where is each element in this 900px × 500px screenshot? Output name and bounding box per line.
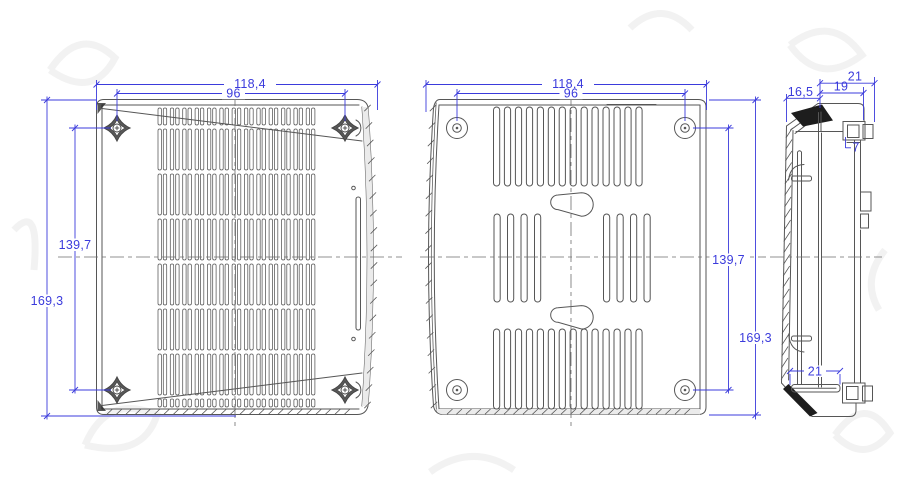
vent-slot: [526, 107, 532, 186]
vent-slot: [306, 108, 309, 125]
vent-slot: [225, 219, 228, 260]
vent-slot: [220, 309, 223, 350]
vent-slot: [170, 129, 173, 170]
vent-slot: [262, 219, 265, 260]
vent-slot: [262, 264, 265, 305]
vent-slot: [294, 399, 297, 407]
background-watermark-part: [430, 456, 514, 472]
background-watermark: [14, 13, 890, 472]
background-watermark-part: [50, 44, 115, 82]
vent-slot: [306, 399, 309, 407]
back-vents-mid-left: [494, 214, 541, 302]
vent-slot: [625, 329, 631, 409]
vent-slot: [250, 264, 253, 305]
hatch-tick: [269, 409, 275, 414]
vent-slot: [250, 129, 253, 170]
vent-slot: [294, 108, 297, 125]
vent-slot: [220, 399, 223, 407]
vent-slot: [274, 309, 277, 350]
side-view: 16,5 19 21 7 21: [770, 70, 882, 417]
dim-back-hole-span-y: 139,7: [693, 125, 748, 394]
vent-slot: [299, 264, 302, 305]
front-bottom-chamfer-line: [98, 373, 362, 406]
vent-slot: [244, 354, 247, 395]
side-profile-part: [847, 387, 859, 400]
front-body-part: [362, 107, 373, 406]
vent-slot: [312, 219, 315, 260]
vent-slot: [158, 399, 161, 407]
vent-slot: [282, 354, 285, 395]
vent-slot: [158, 219, 161, 260]
vent-slot: [287, 354, 290, 395]
hatch-tick: [259, 409, 265, 414]
vent-slot: [183, 219, 186, 260]
front-view: 118,4 96 139,7 169,3: [28, 77, 402, 426]
vent-slot: [244, 264, 247, 305]
vent-slot: [188, 309, 191, 350]
vent-slot: [262, 174, 265, 215]
vent-slot: [213, 264, 216, 305]
vent-slot: [257, 174, 260, 215]
vent-slot: [274, 399, 277, 407]
screw-boss-front-bottom-right: [332, 377, 358, 403]
vent-slot: [287, 399, 290, 407]
clip-slot: [356, 197, 361, 330]
vent-slot: [515, 107, 521, 186]
vent-slot: [176, 264, 179, 305]
vent-slot: [200, 108, 203, 125]
vent-slot: [207, 129, 210, 170]
vent-slot: [225, 309, 228, 350]
vent-slot: [274, 264, 277, 305]
vent-slot: [200, 219, 203, 260]
vent-slot: [250, 219, 253, 260]
vent-slot: [274, 174, 277, 215]
vent-slot: [200, 264, 203, 305]
vent-slot: [282, 219, 285, 260]
vent-slot: [494, 107, 500, 186]
vent-slot: [244, 309, 247, 350]
vent-slot: [244, 129, 247, 170]
screw-hole-back-bottom-right: [675, 380, 696, 401]
vent-slot: [294, 309, 297, 350]
side-profile-part: [848, 125, 860, 138]
vent-slot: [269, 174, 272, 215]
vent-slot: [188, 219, 191, 260]
vent-slot: [269, 309, 272, 350]
vent-slot: [306, 174, 309, 215]
vent-slot: [269, 399, 272, 407]
vent-slot: [287, 108, 290, 125]
vent-slot: [200, 174, 203, 215]
vent-slot: [262, 399, 265, 407]
vent-slot: [207, 399, 210, 407]
vent-slot: [213, 129, 216, 170]
vent-slot: [603, 107, 609, 186]
hatch-tick: [316, 409, 322, 414]
vent-slot: [299, 354, 302, 395]
vent-slot: [312, 354, 315, 395]
vent-slot: [306, 129, 309, 170]
vent-slot: [306, 219, 309, 260]
vent-slot: [299, 174, 302, 215]
vent-slot: [213, 399, 216, 407]
back-vents-mid-right: [604, 214, 651, 302]
vent-slot: [548, 329, 554, 409]
hatch-tick: [183, 409, 189, 414]
vent-slot: [158, 129, 161, 170]
vent-slot: [158, 309, 161, 350]
vent-slot: [617, 214, 623, 302]
vent-slot: [237, 264, 240, 305]
vent-slot: [225, 354, 228, 395]
vent-slot: [257, 354, 260, 395]
vent-slot: [274, 108, 277, 125]
back-vents-bottom: [494, 329, 643, 409]
vent-slot: [508, 214, 514, 302]
vent-slot: [274, 219, 277, 260]
vent-slot: [158, 174, 161, 215]
vent-slot: [287, 309, 290, 350]
vent-slot: [274, 354, 277, 395]
vent-slot: [262, 129, 265, 170]
vent-slot: [294, 174, 297, 215]
vent-slot: [195, 399, 198, 407]
vent-slot: [299, 399, 302, 407]
vent-slot: [244, 108, 247, 125]
hatch-tick: [193, 409, 199, 414]
vent-slot: [183, 129, 186, 170]
technical-drawing-page: 118,4 96 139,7 169,3: [0, 0, 900, 500]
vent-slot: [188, 354, 191, 395]
vent-slot: [287, 174, 290, 215]
vent-slot: [537, 107, 543, 186]
vent-slot: [207, 219, 210, 260]
background-watermark-part: [835, 413, 890, 449]
vent-slot: [312, 309, 315, 350]
vent-slot: [250, 174, 253, 215]
vent-slot: [282, 264, 285, 305]
vent-slot: [176, 108, 179, 125]
vent-slot: [163, 129, 166, 170]
vent-slot: [176, 399, 179, 407]
vent-slot: [250, 309, 253, 350]
vent-slot: [548, 107, 554, 186]
vent-slot: [282, 108, 285, 125]
vent-slot: [636, 107, 642, 186]
vent-slot: [306, 309, 309, 350]
pin-hole: [352, 337, 356, 341]
vent-slot: [282, 399, 285, 407]
vent-slot: [262, 309, 265, 350]
vent-slot: [269, 129, 272, 170]
dim-back-hole-span-x-label: 96: [564, 86, 579, 100]
hatch-tick: [250, 409, 256, 414]
vent-slot: [269, 219, 272, 260]
vent-slot: [521, 214, 527, 302]
vent-slot: [237, 309, 240, 350]
vent-slot: [213, 309, 216, 350]
vent-slot: [225, 129, 228, 170]
vent-slot: [494, 329, 500, 409]
vent-slot: [207, 174, 210, 215]
vent-slot: [294, 129, 297, 170]
vent-slot: [158, 354, 161, 395]
vent-slot: [504, 107, 510, 186]
vent-slot: [207, 354, 210, 395]
vent-slot: [614, 107, 620, 186]
keyhole-slot-upper: [551, 193, 594, 216]
dim-back-overall-height-label: 169,3: [739, 331, 772, 345]
pin-hole: [352, 186, 356, 190]
vent-slot: [176, 309, 179, 350]
background-watermark-part: [871, 250, 885, 310]
dim-side-bottom-depth-label: 21: [808, 364, 823, 378]
vent-slot: [257, 108, 260, 125]
dim-side-body-depth-label: 16,5: [788, 85, 814, 99]
front-grille: [158, 108, 315, 407]
dim-front-hole-span-y: 139,7: [56, 125, 111, 394]
vent-slot: [287, 264, 290, 305]
vent-slot: [195, 108, 198, 125]
vent-slot: [163, 219, 166, 260]
vent-slot: [287, 129, 290, 170]
vent-slot: [592, 329, 598, 409]
vent-slot: [312, 174, 315, 215]
vent-slot: [183, 174, 186, 215]
vent-slot: [312, 108, 315, 125]
front-top-chamfer-line: [98, 108, 362, 141]
vent-slot: [170, 399, 173, 407]
vent-slot: [183, 399, 186, 407]
vent-slot: [515, 329, 521, 409]
vent-slot: [603, 329, 609, 409]
vent-slot: [631, 214, 637, 302]
background-watermark-part: [790, 31, 862, 69]
keyhole-slot-lower: [551, 306, 594, 329]
vent-slot: [257, 264, 260, 305]
vent-slot: [262, 108, 265, 125]
vent-slot: [299, 309, 302, 350]
vent-slot: [158, 108, 161, 125]
side-clip: [861, 214, 869, 228]
vent-slot: [526, 329, 532, 409]
hatch-tick: [335, 409, 341, 414]
vent-slot: [312, 399, 315, 407]
vent-slot: [581, 107, 587, 186]
hatch-tick: [221, 409, 227, 414]
vent-slot: [237, 108, 240, 125]
vent-slot: [269, 264, 272, 305]
vent-slot: [183, 309, 186, 350]
vent-slot: [237, 129, 240, 170]
vent-slot: [200, 399, 203, 407]
vent-slot: [299, 108, 302, 125]
vent-slot: [269, 354, 272, 395]
vent-slot: [213, 354, 216, 395]
vent-slot: [294, 219, 297, 260]
side-profile-part: [798, 151, 802, 384]
vent-slot: [282, 174, 285, 215]
side-profile-part: [783, 384, 818, 417]
vent-slot: [213, 219, 216, 260]
back-vents-top: [494, 107, 643, 186]
vent-slot: [170, 174, 173, 215]
vent-slot: [257, 399, 260, 407]
vent-slot: [170, 264, 173, 305]
vent-slot: [188, 264, 191, 305]
vent-slot: [250, 354, 253, 395]
vent-slot: [170, 219, 173, 260]
dim-front-hole-span-x-label: 96: [226, 86, 241, 100]
vent-slot: [581, 329, 587, 409]
vent-slot: [195, 129, 198, 170]
vent-slot: [299, 129, 302, 170]
vent-slot: [282, 309, 285, 350]
top-wedge: [791, 105, 833, 127]
vent-slot: [176, 354, 179, 395]
vent-slot: [200, 129, 203, 170]
vent-slot: [220, 108, 223, 125]
vent-slot: [195, 354, 198, 395]
vent-slot: [537, 329, 543, 409]
hatch-tick: [202, 409, 208, 414]
vent-slot: [225, 174, 228, 215]
vent-slot: [225, 399, 228, 407]
vent-slot: [592, 107, 598, 186]
vent-slot: [188, 108, 191, 125]
hatch-tick: [326, 409, 332, 414]
vent-slot: [237, 399, 240, 407]
vent-slot: [163, 309, 166, 350]
hatch-tick: [212, 409, 218, 414]
hatch-tick: [297, 409, 303, 414]
hatch-tick: [240, 409, 246, 414]
screw-hole-back-bottom-left: [447, 380, 468, 401]
vent-slot: [183, 264, 186, 305]
vent-slot: [176, 129, 179, 170]
dim-front-overall-height-label: 169,3: [31, 294, 64, 308]
vent-slot: [257, 219, 260, 260]
vent-slot: [299, 219, 302, 260]
vent-slot: [170, 309, 173, 350]
vent-slot: [559, 329, 565, 409]
vent-slot: [306, 354, 309, 395]
vent-slot: [207, 309, 210, 350]
vent-slot: [170, 108, 173, 125]
vent-slot: [163, 264, 166, 305]
hatch-tick: [174, 409, 180, 414]
vent-slot: [559, 107, 565, 186]
vent-slot: [504, 329, 510, 409]
vent-slot: [225, 108, 228, 125]
vent-slot: [625, 107, 631, 186]
vent-slot: [207, 264, 210, 305]
vent-slot: [213, 174, 216, 215]
vent-slot: [636, 329, 642, 409]
vent-slot: [269, 108, 272, 125]
side-clip: [861, 192, 872, 211]
dim-front-overall-height: 169,3: [28, 97, 236, 420]
vent-slot: [535, 214, 541, 302]
vent-slot: [176, 219, 179, 260]
dim-front-hole-span-y-label: 139,7: [59, 238, 92, 252]
vent-slot: [200, 309, 203, 350]
vent-slot: [294, 264, 297, 305]
technical-drawing: 118,4 96 139,7 169,3: [0, 0, 900, 500]
hatch-tick: [307, 409, 313, 414]
vent-slot: [244, 399, 247, 407]
vent-slot: [163, 354, 166, 395]
vent-slot: [237, 174, 240, 215]
vent-slot: [183, 108, 186, 125]
vent-slot: [257, 309, 260, 350]
vent-slot: [644, 214, 650, 302]
dim-side-depth-minus-lip-label: 19: [834, 79, 849, 93]
vent-slot: [170, 354, 173, 395]
vent-slot: [294, 354, 297, 395]
hatch-tick: [278, 409, 284, 414]
vent-slot: [244, 174, 247, 215]
vent-slot: [176, 174, 179, 215]
vent-slot: [220, 264, 223, 305]
vent-slot: [306, 264, 309, 305]
vent-slot: [188, 399, 191, 407]
hatch-tick: [164, 409, 170, 414]
vent-slot: [257, 129, 260, 170]
dim-front-hole-span-x: 96: [114, 86, 348, 121]
vent-slot: [494, 214, 500, 302]
vent-slot: [220, 219, 223, 260]
vent-slot: [195, 174, 198, 215]
vent-slot: [188, 129, 191, 170]
vent-slot: [188, 174, 191, 215]
dim-side-tab-depth-label: 7: [852, 141, 859, 155]
vent-slot: [225, 264, 228, 305]
vent-slot: [183, 354, 186, 395]
background-watermark-part: [630, 13, 692, 30]
vent-slot: [220, 174, 223, 215]
vent-slot: [163, 399, 166, 407]
vent-slot: [274, 129, 277, 170]
vent-slot: [604, 214, 610, 302]
dim-side-depth-overall-label: 21: [848, 70, 863, 84]
vent-slot: [158, 264, 161, 305]
hatch-tick: [345, 409, 351, 414]
side-profile-part: [863, 386, 873, 401]
vent-slot: [237, 219, 240, 260]
vent-slot: [244, 219, 247, 260]
background-watermark-part: [14, 222, 35, 270]
vent-slot: [250, 108, 253, 125]
vent-slot: [614, 329, 620, 409]
back-view: 118,4 96 139,7 169,3: [420, 77, 775, 428]
vent-slot: [220, 354, 223, 395]
vent-slot: [220, 129, 223, 170]
vent-slot: [250, 399, 253, 407]
vent-slot: [200, 354, 203, 395]
vent-slot: [163, 174, 166, 215]
dim-side-bottom-depth: 21: [787, 364, 843, 385]
dim-back-hole-span-y-label: 139,7: [712, 253, 745, 267]
vent-slot: [195, 219, 198, 260]
vent-slot: [262, 354, 265, 395]
vent-slot: [195, 309, 198, 350]
vent-slot: [312, 264, 315, 305]
hatch-tick: [288, 409, 294, 414]
vent-slot: [195, 264, 198, 305]
vent-slot: [282, 129, 285, 170]
